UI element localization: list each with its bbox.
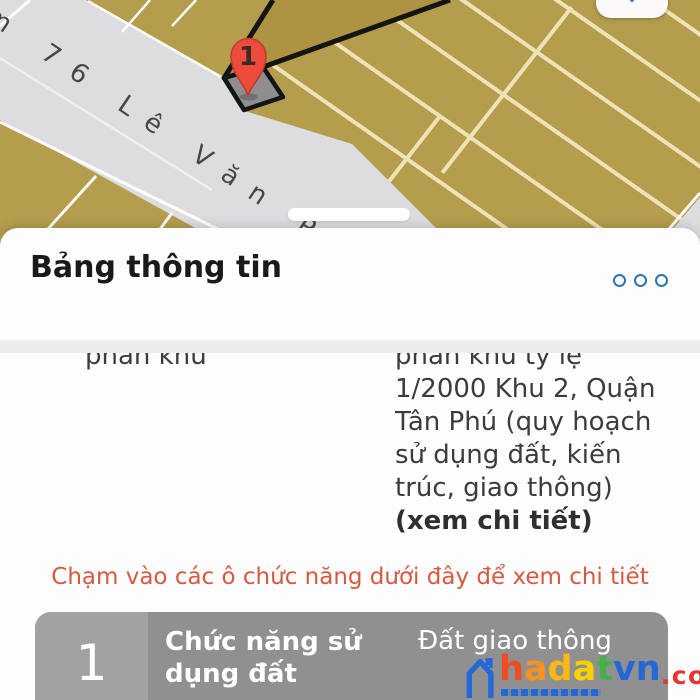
info-row-planning: phân khu phân khu tỷ lệ 1/2000 Khu 2, Qu… [0,340,700,538]
section-divider [0,340,700,353]
watermark-letter: h [499,649,524,689]
info-row-value: phân khu tỷ lệ 1/2000 Khu 2, Quận Tân Ph… [395,340,661,538]
watermark-letter: a [573,649,597,689]
watermark-letter: d [548,649,573,689]
watermark-letter: t [596,649,613,689]
circle-icon [655,274,668,287]
watermark-letter: v [613,649,636,689]
sheet-drag-handle[interactable] [288,208,410,221]
watermark-letter: n [636,649,661,689]
watermark-letter: a [524,649,548,689]
info-bottom-sheet: Bảng thông tin phân khu phân khu tỷ lệ 1… [0,228,700,700]
row-label: Chức năng sử dụng đất [165,626,410,690]
tune-sliders-icon [630,0,634,2]
view-detail-link[interactable]: (xem chi tiết) [395,505,661,538]
map-canvas[interactable]: m 76 Lê Văn Phan 1 [0,0,700,250]
row-index: 1 [35,612,148,700]
info-row-value-text: phân khu tỷ lệ 1/2000 Khu 2, Quận Tân Ph… [395,341,655,503]
more-options-button[interactable] [613,274,668,287]
house-icon [463,656,499,698]
watermark-brand-letters: hadatvn [499,650,661,688]
watermark-suffix: .com.vn [661,661,700,690]
instruction-text: Chạm vào các ô chức năng dưới đây để xem… [0,564,700,590]
watermark: hadatvn .com.vn [463,650,700,698]
watermark-slogan [501,689,601,696]
info-row-label: phân khu [85,340,335,538]
marker-number: 1 [239,42,257,72]
circle-icon [634,274,647,287]
map-layers-button[interactable] [596,0,668,18]
page-title: Bảng thông tin [30,250,282,285]
circle-icon [613,274,626,287]
marker-shadow [240,94,258,101]
